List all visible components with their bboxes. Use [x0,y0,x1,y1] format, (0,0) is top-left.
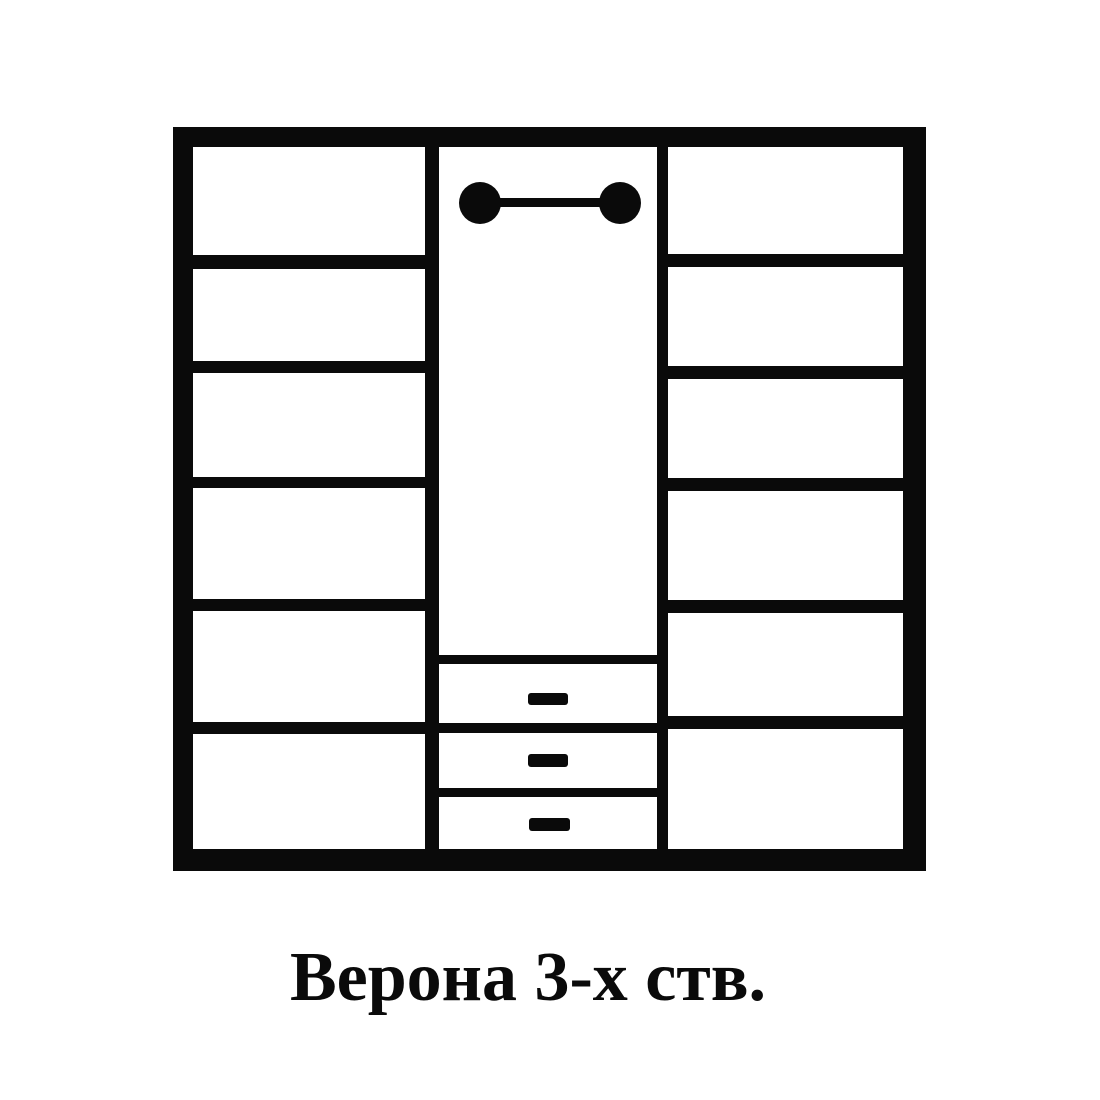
svg-text:Верона 3-х ств.: Верона 3-х ств. [290,939,766,1016]
